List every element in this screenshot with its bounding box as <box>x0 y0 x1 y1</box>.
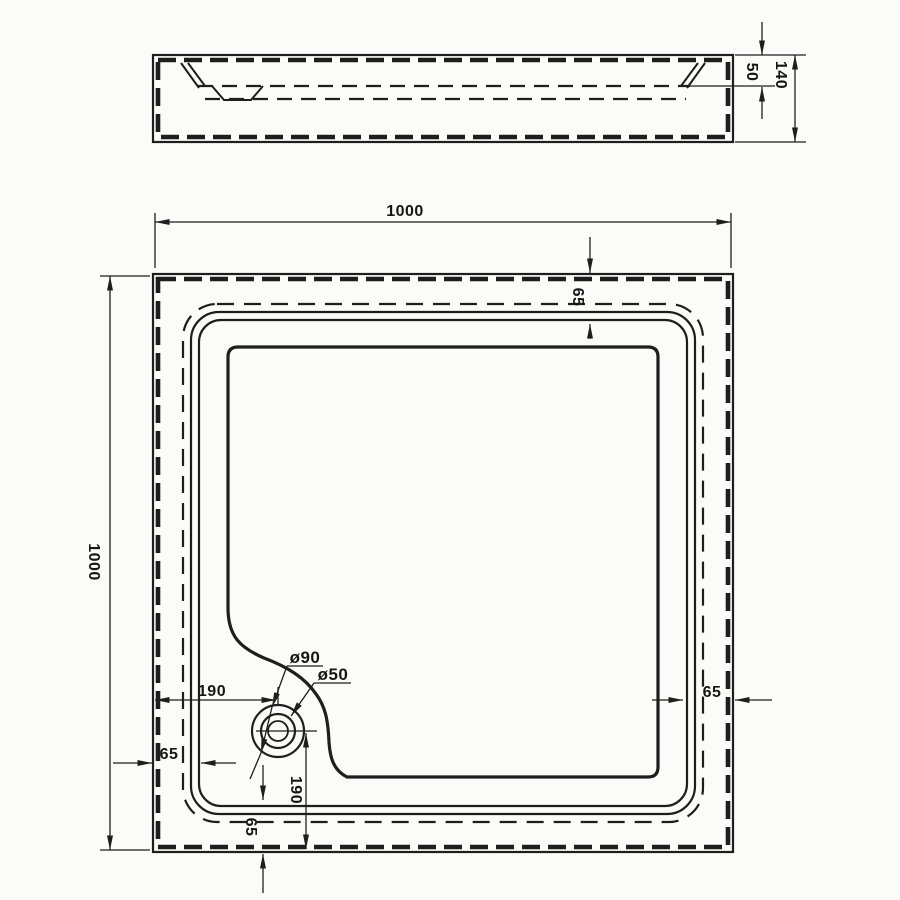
dim-drain-inner-diameter: ø50 <box>291 665 351 716</box>
dim-rim-bottom-label: 65 <box>242 818 259 837</box>
dim-overall-width: 1000 <box>155 203 731 268</box>
dim-drain-offset-left: 190 <box>155 683 276 700</box>
dim-drain-offset-left-label: 190 <box>198 683 226 700</box>
drawing-page: 50 140 1000 1000 <box>0 0 900 900</box>
dim-overall-height: 1000 <box>85 276 150 850</box>
dim-rim-left: 65 <box>113 746 236 763</box>
dim-drain-inner-diameter-label: ø50 <box>318 665 349 684</box>
dim-rim-right: 65 <box>652 684 772 701</box>
technical-drawing: 50 140 1000 1000 <box>0 0 900 900</box>
drain <box>252 687 317 757</box>
plan-rim-band <box>158 279 728 847</box>
dim-rim-bottom: 65 <box>242 765 263 893</box>
dim-rim-left-label: 65 <box>160 746 179 763</box>
dim-rim-top: 65 <box>569 237 590 339</box>
plan-outer-wall <box>153 274 733 852</box>
plan-rim-hidden-contour <box>183 304 703 822</box>
dim-total-height-label: 140 <box>772 61 789 89</box>
side-right-wall-slope <box>681 63 705 88</box>
plan-floor-contour <box>228 347 658 777</box>
dim-drain-offset-bottom-label: 190 <box>287 776 304 804</box>
dim-drain-outer-diameter: ø90 <box>250 648 323 779</box>
dim-total-height: 140 <box>772 55 795 142</box>
dim-rim-top-label: 65 <box>569 288 586 307</box>
dim-drain-outer-diameter-label: ø90 <box>290 648 321 667</box>
dim-overall-width-label: 1000 <box>386 203 424 220</box>
plan-rim-inner-contour-2 <box>199 320 687 806</box>
dim-overall-height-label: 1000 <box>85 543 102 581</box>
plan-view: 1000 1000 65 65 65 65 <box>85 203 772 893</box>
dim-rim-depth: 50 <box>743 22 762 119</box>
dim-rim-depth-label: 50 <box>743 63 760 82</box>
dim-rim-right-label: 65 <box>703 684 722 701</box>
side-left-wall-slope <box>181 63 205 88</box>
side-view: 50 140 <box>153 22 806 142</box>
plan-rim-inner-contour-1 <box>191 312 695 814</box>
